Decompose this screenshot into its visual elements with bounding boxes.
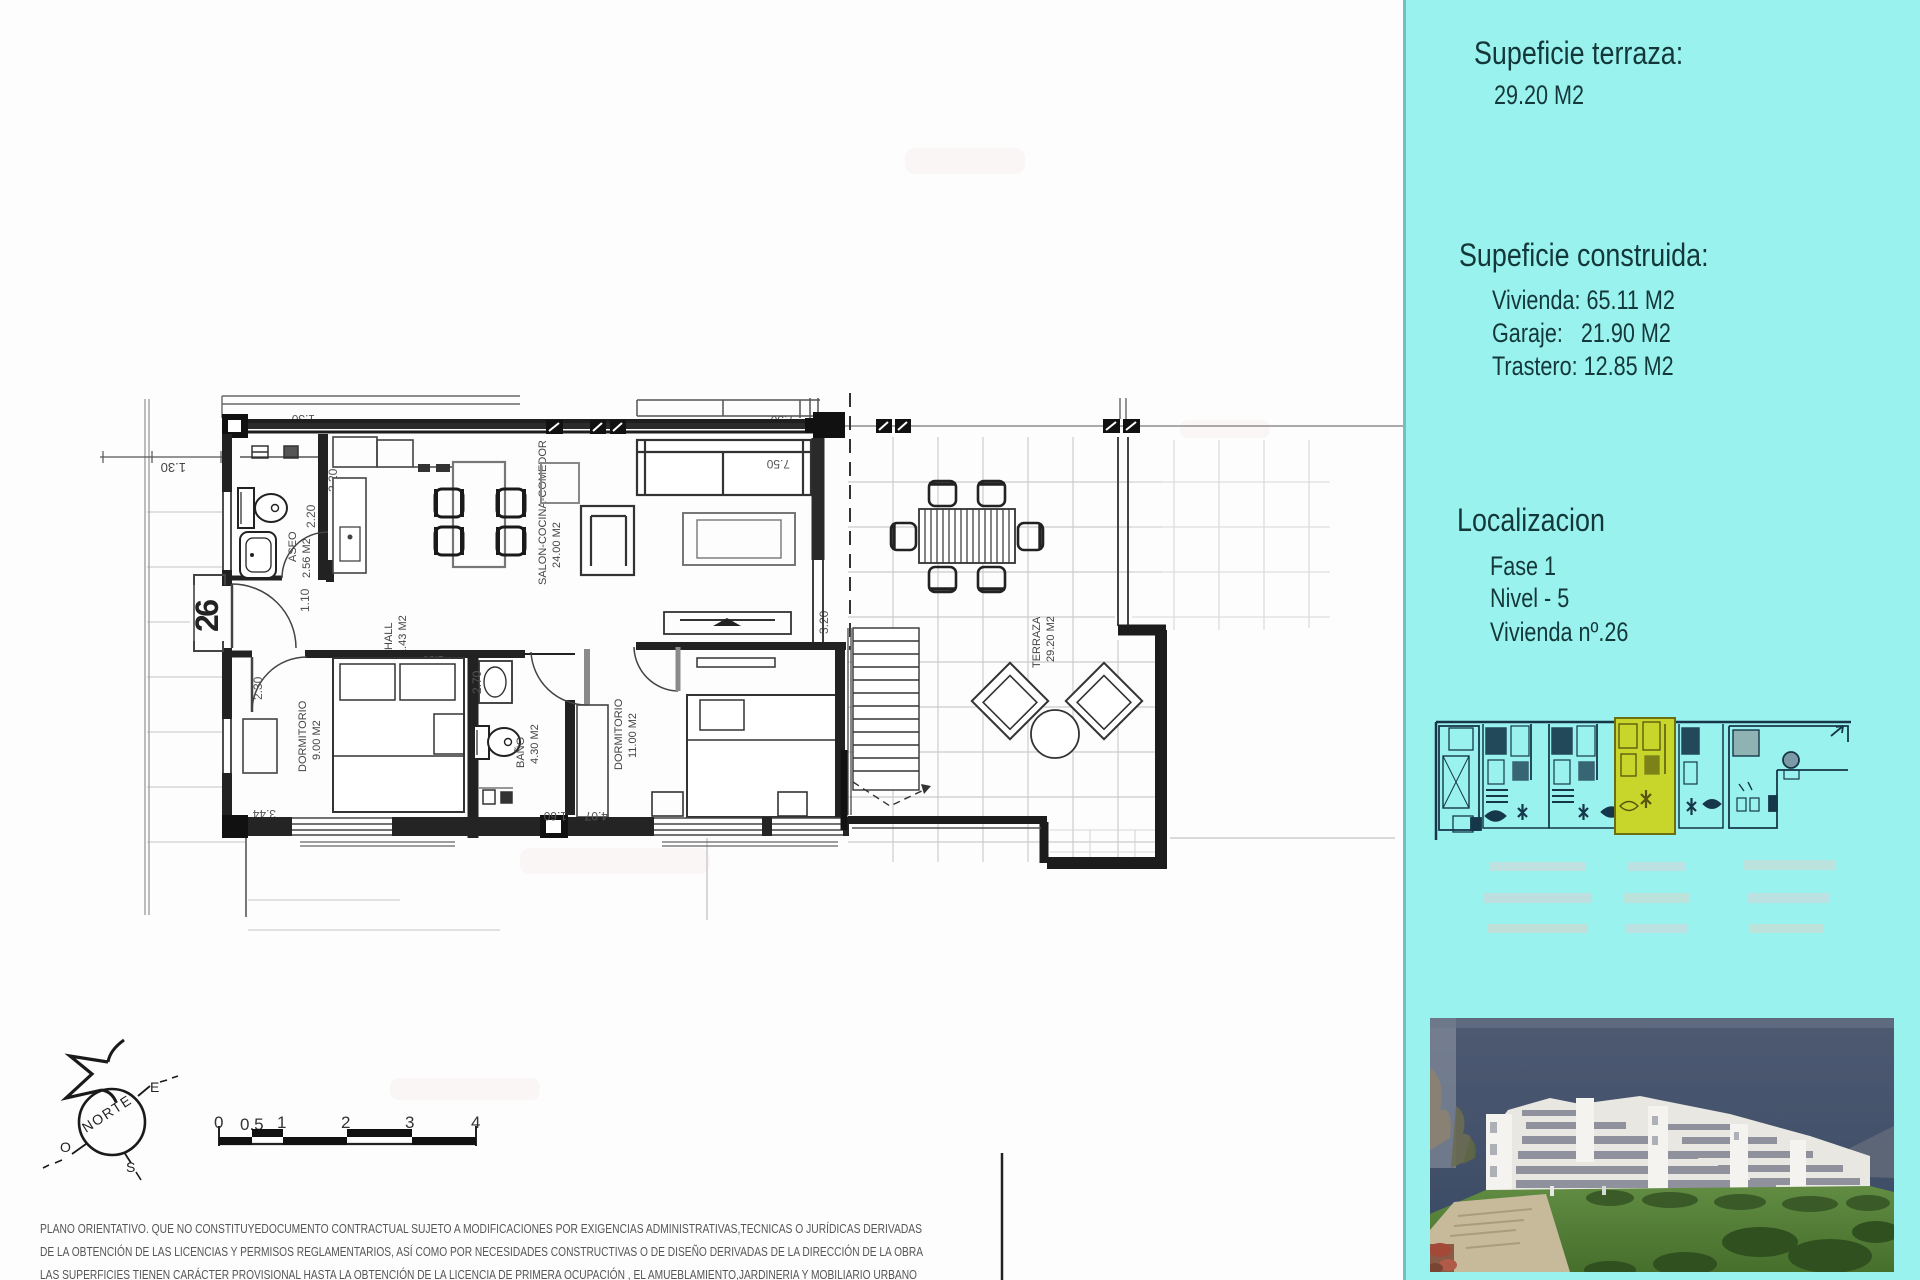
svg-text:26: 26 (189, 599, 225, 632)
svg-text:1.60: 1.60 (543, 809, 567, 823)
svg-text:1.43 M2: 1.43 M2 (397, 615, 409, 655)
svg-text:LAS SUPERFICIES TIENEN CARÁCTE: LAS SUPERFICIES TIENEN CARÁCTER PROVISIO… (40, 1267, 917, 1280)
svg-text:2.56 M2: 2.56 M2 (301, 538, 313, 578)
svg-text:7.50: 7.50 (766, 457, 790, 471)
svg-text:11.00 M2: 11.00 M2 (627, 713, 639, 758)
svg-text:24.00 M2: 24.00 M2 (551, 522, 563, 568)
svg-text:DE LA OBTENCIÓN DE LAS LICENCI: DE LA OBTENCIÓN DE LAS LICENCIAS Y PERMI… (40, 1244, 924, 1259)
svg-text:PLANO ORIENTATIVO. QUE NO CONS: PLANO ORIENTATIVO. QUE NO CONSTITUYE​DOC… (40, 1221, 922, 1236)
svg-text:1.10: 1.10 (298, 588, 312, 612)
svg-text:4.30 M2: 4.30 M2 (529, 724, 541, 764)
svg-text:9.00 M2: 9.00 M2 (311, 720, 323, 760)
svg-text:ASEO: ASEO (287, 531, 299, 562)
svg-text:BAÑO: BAÑO (514, 736, 527, 768)
svg-text:2.30: 2.30 (251, 676, 265, 700)
svg-text:TERRAZA: TERRAZA (1031, 616, 1043, 668)
svg-text:HALL: HALL (383, 622, 395, 650)
svg-text:4.07: 4.07 (584, 809, 608, 823)
svg-text:E: E (150, 1079, 159, 1095)
svg-text:SALON-COCINA-COMEDOR: SALON-COCINA-COMEDOR (537, 440, 549, 585)
svg-text:3.20: 3.20 (817, 610, 831, 634)
svg-text:2.70: 2.70 (470, 670, 484, 694)
svg-text:NORTE: NORTE (79, 1091, 135, 1135)
svg-text:2.20: 2.20 (304, 504, 318, 528)
svg-text:DORMITORIO: DORMITORIO (613, 698, 625, 770)
svg-text:1.30: 1.30 (161, 460, 186, 475)
svg-text:O: O (60, 1139, 71, 1155)
svg-text:29.20 M2: 29.20 M2 (1045, 616, 1057, 662)
svg-text:S: S (126, 1159, 135, 1175)
svg-text:DORMITORIO: DORMITORIO (297, 700, 309, 772)
